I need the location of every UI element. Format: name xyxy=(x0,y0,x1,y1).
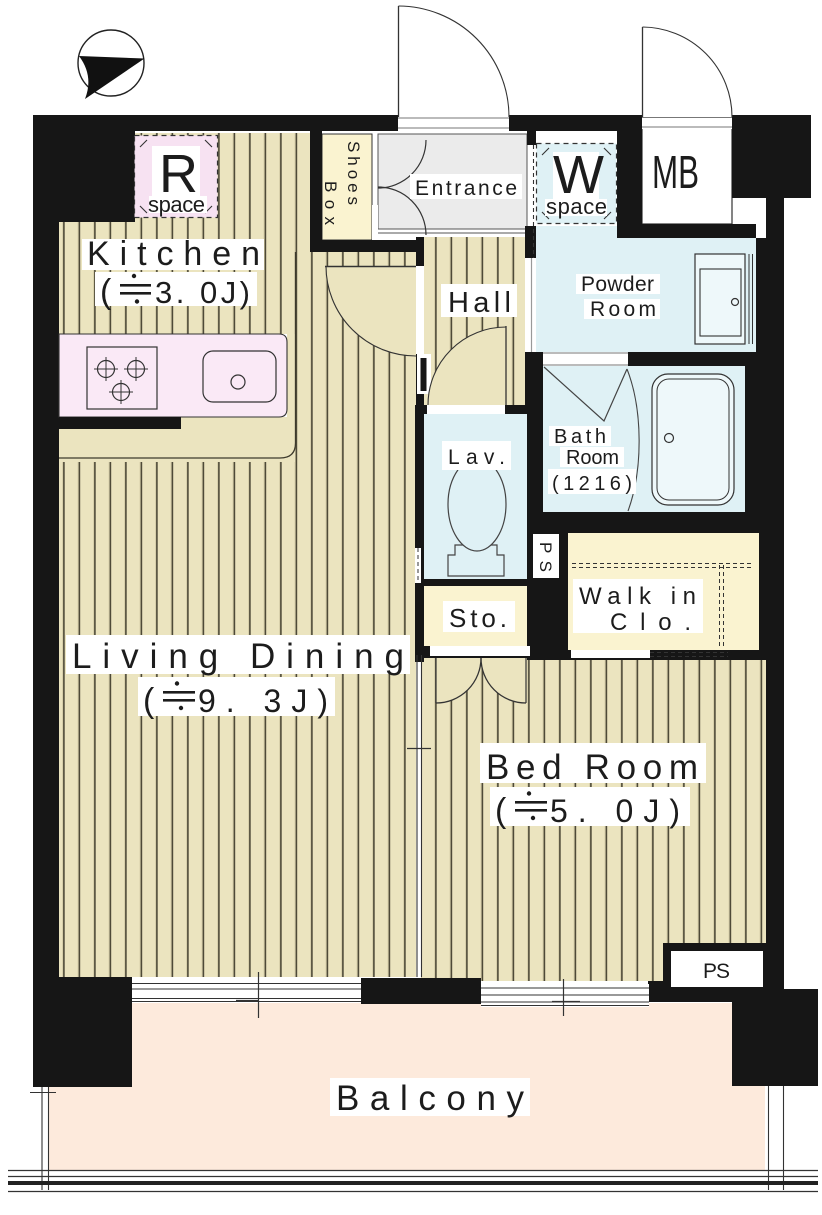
svg-text:space: space xyxy=(546,194,607,219)
svg-text:Bath: Bath xyxy=(554,426,606,448)
svg-text:MB: MB xyxy=(652,146,699,198)
svg-text:Living Dining: Living Dining xyxy=(72,637,404,676)
svg-text:(: ( xyxy=(100,273,112,311)
svg-text:Room: Room xyxy=(566,447,619,469)
svg-text:(: ( xyxy=(143,682,155,720)
svg-text:(: ( xyxy=(495,792,507,830)
svg-text:Powder: Powder xyxy=(581,273,654,296)
svg-text:Box: Box xyxy=(321,181,340,226)
svg-text:space: space xyxy=(148,192,205,217)
svg-text:Room: Room xyxy=(590,298,656,321)
svg-text:3. 0J): 3. 0J) xyxy=(155,275,250,310)
svg-text:PS: PS xyxy=(703,960,730,983)
